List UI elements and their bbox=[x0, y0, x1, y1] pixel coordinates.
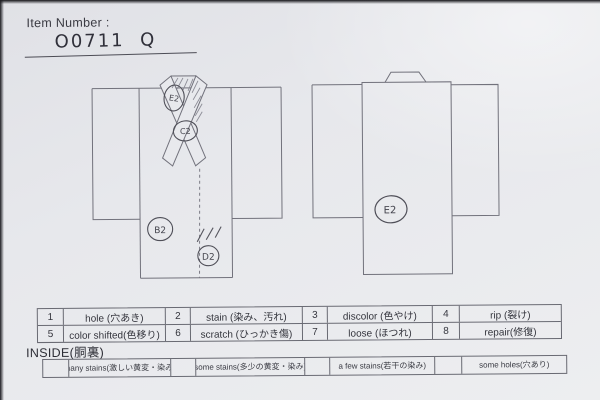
inside-option-label: many stains(激しい黄変・染み) bbox=[68, 359, 170, 377]
scratch-marks bbox=[197, 227, 221, 242]
mark-center-back: E2 bbox=[384, 205, 397, 216]
legend-label: discolor (色やけ) bbox=[327, 306, 432, 323]
mark-center-hem: D2 bbox=[202, 253, 215, 263]
legend-label: loose (ほつれ) bbox=[327, 323, 432, 340]
inspection-sheet: Item Number : O0711 Q bbox=[0, 0, 600, 400]
legend-label: scratch (ひっかき傷) bbox=[190, 324, 302, 341]
legend-label: repair(修復) bbox=[459, 322, 561, 339]
legend-num: 4 bbox=[432, 306, 459, 322]
inside-checkbox-cell bbox=[170, 359, 195, 376]
inside-checkbox-cell bbox=[43, 360, 68, 377]
inside-option-label: a few stains(若干の染み) bbox=[329, 357, 434, 375]
legend-label: stain (染み、汚れ) bbox=[190, 307, 302, 324]
damage-legend-table: 1 hole (穴あき) 2 stain (染み、汚れ) 3 discolor … bbox=[37, 304, 562, 343]
inside-checkbox-cell bbox=[434, 357, 461, 374]
kimono-back-outline bbox=[312, 71, 500, 274]
legend-num: 8 bbox=[432, 323, 459, 339]
legend-num: 5 bbox=[38, 326, 63, 342]
legend-num: 3 bbox=[302, 307, 327, 323]
mark-left-panel: B2 bbox=[154, 226, 166, 236]
legend-num: 7 bbox=[302, 324, 327, 340]
legend-label: rip (裂け) bbox=[459, 305, 561, 322]
mark-front-collar: E2 bbox=[168, 93, 179, 103]
inside-option-label: some holes(穴あり) bbox=[461, 356, 566, 374]
legend-label: color shifted(色移り) bbox=[63, 325, 165, 342]
inside-option-label: some stains(多少の黄変・染み) bbox=[195, 358, 304, 376]
legend-num: 6 bbox=[165, 325, 190, 341]
legend-num: 1 bbox=[38, 309, 63, 325]
inside-checkbox-cell bbox=[304, 358, 329, 375]
mark-collar-crossing: C2 bbox=[180, 127, 191, 136]
legend-label: hole (穴あき) bbox=[63, 308, 165, 325]
photo-background: Item Number : O0711 Q bbox=[0, 0, 600, 400]
legend-num: 2 bbox=[165, 308, 190, 324]
